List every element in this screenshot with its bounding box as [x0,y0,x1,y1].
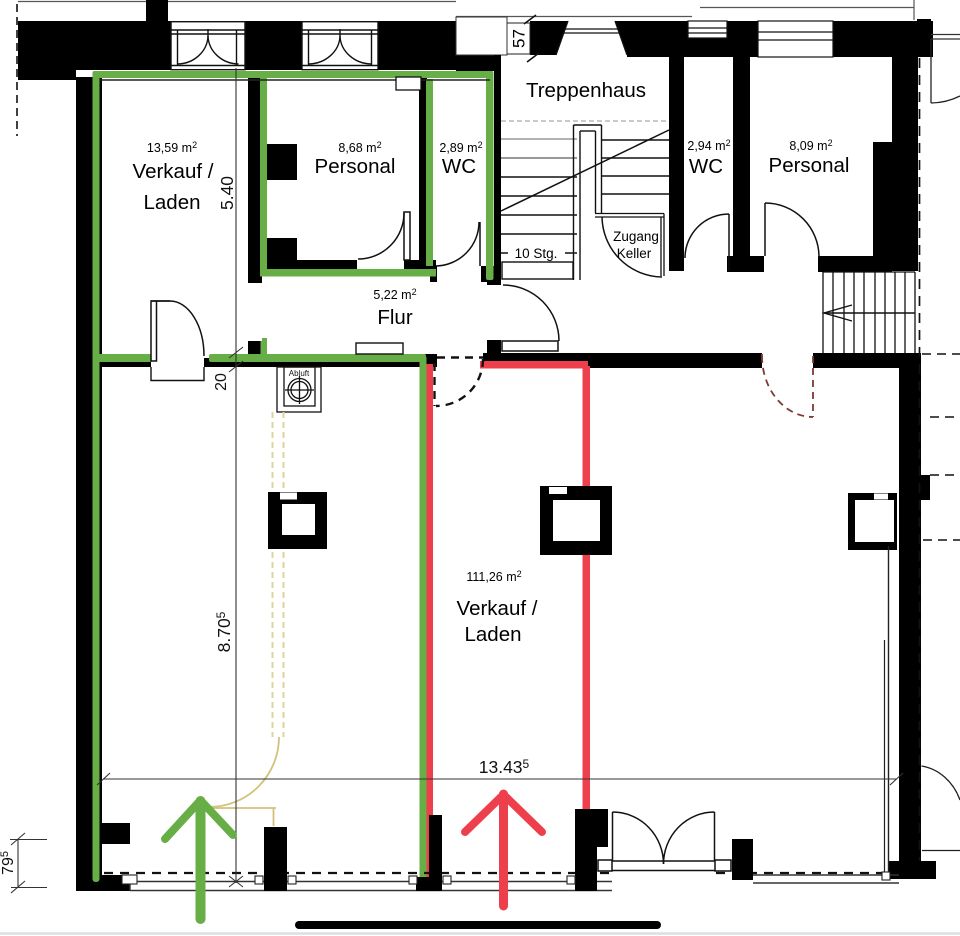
svg-text:Zugang: Zugang [613,229,659,244]
svg-text:Laden: Laden [464,623,521,646]
svg-text:Abluft: Abluft [289,369,310,378]
svg-text:Flur: Flur [377,306,412,329]
svg-text:10 Stg.: 10 Stg. [515,246,558,261]
svg-text:Verkauf /: Verkauf / [133,160,214,183]
svg-text:20: 20 [213,373,230,391]
svg-text:5,22 m2: 5,22 m2 [373,287,416,302]
svg-text:Personal: Personal [769,154,850,177]
svg-text:WC: WC [442,155,476,178]
svg-text:111,26 m2: 111,26 m2 [466,569,521,584]
svg-text:5.40: 5.40 [217,176,237,210]
svg-text:Keller: Keller [617,246,652,261]
svg-text:Laden: Laden [143,191,200,214]
svg-text:8,09 m2: 8,09 m2 [789,138,832,153]
svg-text:WC: WC [689,155,723,178]
svg-text:8,68 m2: 8,68 m2 [338,140,381,155]
svg-text:13,59 m2: 13,59 m2 [147,140,197,155]
svg-text:Personal: Personal [315,155,396,178]
svg-text:2,94 m2: 2,94 m2 [687,138,730,153]
svg-text:13.435: 13.435 [479,757,530,777]
svg-text:2,89 m2: 2,89 m2 [439,140,482,155]
svg-text:Treppenhaus: Treppenhaus [526,79,646,102]
svg-text:Verkauf /: Verkauf / [457,597,538,620]
svg-text:57: 57 [510,29,529,48]
